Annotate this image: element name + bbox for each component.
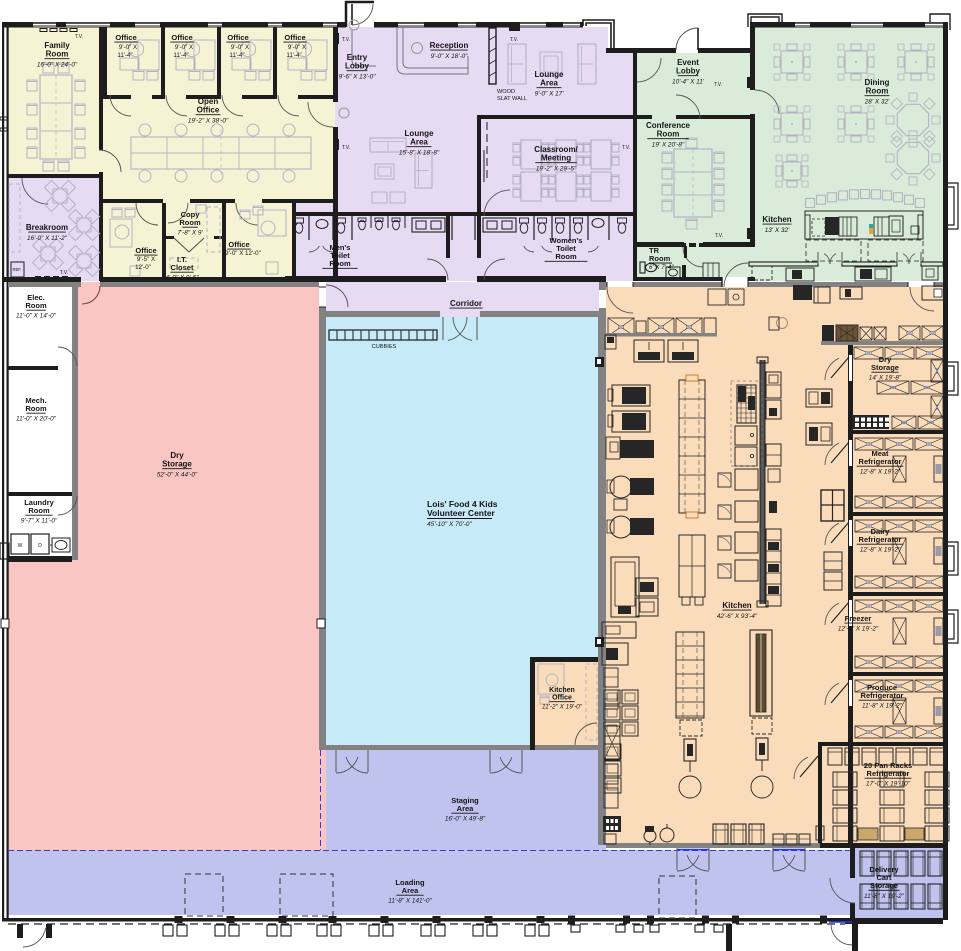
- svg-text:T.V.: T.V.: [622, 145, 630, 151]
- svg-text:T.V.: T.V.: [342, 145, 350, 151]
- svg-text:11'-8" X 19'-2": 11'-8" X 19'-2": [862, 703, 903, 710]
- svg-text:9'-0" X 17': 9'-0" X 17': [535, 91, 565, 98]
- svg-text:11'-4": 11'-4": [173, 52, 188, 59]
- svg-text:T.V.: T.V.: [714, 82, 722, 88]
- svg-text:Storage: Storage: [871, 363, 899, 372]
- svg-text:Refrigerator: Refrigerator: [859, 457, 902, 466]
- svg-text:Storage: Storage: [870, 881, 898, 890]
- svg-text:Lobby: Lobby: [345, 62, 370, 71]
- svg-text:Volunteer Center: Volunteer Center: [427, 508, 496, 518]
- svg-text:52'-0" X 44'-0": 52'-0" X 44'-0": [157, 472, 198, 479]
- svg-text:Closet: Closet: [171, 263, 194, 272]
- svg-text:9'-0" X: 9'-0" X: [288, 44, 306, 51]
- svg-text:19'-2" X 38'-0": 19'-2" X 38'-0": [188, 118, 229, 125]
- svg-text:12'-8" X 19'-2": 12'-8" X 19'-2": [860, 547, 901, 554]
- svg-text:SLAT WALL: SLAT WALL: [497, 96, 527, 102]
- svg-text:9'-6" X 13'-0": 9'-6" X 13'-0": [339, 74, 377, 81]
- svg-text:4'-0" X 9'-5": 4'-0" X 9'-5": [165, 275, 199, 282]
- svg-text:12'-8" X 19'-2": 12'-8" X 19'-2": [860, 469, 901, 476]
- svg-text:11'-4": 11'-4": [229, 52, 244, 59]
- svg-text:Office: Office: [197, 106, 220, 115]
- svg-text:Room: Room: [866, 87, 889, 96]
- svg-text:Kitchen: Kitchen: [722, 601, 751, 610]
- svg-text:T.V.: T.V.: [342, 37, 350, 43]
- svg-text:Kitchen: Kitchen: [762, 215, 791, 224]
- svg-text:11'-0" X 20'-0": 11'-0" X 20'-0": [16, 416, 57, 423]
- svg-text:REF.: REF.: [12, 267, 21, 272]
- svg-text:12'-0": 12'-0": [135, 264, 151, 271]
- svg-text:T.V.: T.V.: [60, 270, 68, 276]
- svg-text:D: D: [38, 543, 42, 549]
- svg-text:Room: Room: [25, 301, 47, 310]
- svg-text:Area: Area: [540, 79, 558, 88]
- svg-text:17'-0" X 19'-10": 17'-0" X 19'-10": [866, 781, 911, 788]
- svg-text:10'-4" X 11': 10'-4" X 11': [672, 79, 705, 86]
- svg-text:W: W: [18, 543, 23, 549]
- svg-text:Office: Office: [115, 33, 136, 42]
- svg-text:9'-0" X 12'-0": 9'-0" X 12'-0": [225, 250, 261, 257]
- svg-text:T.V.: T.V.: [715, 233, 723, 239]
- svg-text:Freezer: Freezer: [845, 614, 872, 623]
- svg-text:Room: Room: [555, 252, 577, 261]
- svg-text:Storage: Storage: [162, 460, 192, 469]
- svg-text:Area: Area: [402, 886, 420, 895]
- svg-text:Office: Office: [228, 240, 249, 249]
- svg-text:T.V.: T.V.: [510, 37, 518, 43]
- svg-text:Refrigerator: Refrigerator: [867, 769, 910, 778]
- svg-text:45'-10" X 70'-0": 45'-10" X 70'-0": [427, 521, 472, 528]
- svg-text:9'-7" X 11'-0": 9'-7" X 11'-0": [21, 518, 58, 525]
- svg-text:16'-0" X 49'-8": 16'-0" X 49'-8": [445, 816, 486, 823]
- svg-text:16'-0" X 24'-0": 16'-0" X 24'-0": [37, 62, 78, 69]
- svg-text:Refrigerator: Refrigerator: [861, 691, 904, 700]
- svg-text:Reception: Reception: [430, 41, 469, 50]
- svg-text:Meeting: Meeting: [541, 154, 571, 163]
- svg-text:11'-8" X 19'-2": 11'-8" X 19'-2": [864, 893, 905, 900]
- svg-text:16'-0" X 11'-2": 16'-0" X 11'-2": [27, 235, 68, 242]
- svg-text:11'-0" X 14'-0": 11'-0" X 14'-0": [16, 313, 57, 320]
- svg-text:Room: Room: [28, 506, 50, 515]
- svg-text:11'-8" X 141'-0": 11'-8" X 141'-0": [388, 898, 432, 905]
- svg-text:12'-8" X 19'-2": 12'-8" X 19'-2": [838, 626, 879, 633]
- svg-text:Office: Office: [135, 246, 156, 255]
- svg-text:Refrigerator: Refrigerator: [859, 535, 902, 544]
- svg-text:WOOD: WOOD: [497, 89, 515, 95]
- svg-text:7'-8" X 9': 7'-8" X 9': [177, 230, 203, 237]
- svg-text:Room: Room: [329, 259, 351, 268]
- svg-text:9'-0" X: 9'-0" X: [231, 44, 249, 51]
- svg-text:T.V.: T.V.: [75, 34, 83, 40]
- svg-text:13' X 32': 13' X 32': [765, 227, 790, 234]
- svg-text:11'-4": 11'-4": [286, 52, 301, 59]
- svg-text:Corridor: Corridor: [450, 299, 482, 308]
- svg-text:Breakroom: Breakroom: [26, 223, 68, 232]
- svg-text:14' X 19'-8": 14' X 19'-8": [869, 375, 902, 382]
- svg-text:Room: Room: [46, 50, 69, 59]
- svg-text:Kitchen: Kitchen: [549, 687, 575, 694]
- svg-text:6' X 7'-4": 6' X 7'-4": [649, 264, 674, 271]
- svg-text:Area: Area: [410, 138, 428, 147]
- svg-text:Room: Room: [25, 404, 47, 413]
- svg-text:11'-4": 11'-4": [117, 52, 132, 59]
- svg-text:9'-0" X: 9'-0" X: [119, 44, 137, 51]
- svg-text:Office: Office: [171, 33, 192, 42]
- svg-text:28' X 32': 28' X 32': [864, 99, 890, 106]
- svg-text:Office: Office: [227, 33, 248, 42]
- svg-text:19' X 20'-8": 19' X 20'-8": [652, 142, 685, 149]
- svg-text:Area: Area: [457, 804, 475, 813]
- svg-text:9'-5" X: 9'-5" X: [137, 256, 155, 263]
- svg-text:CUBBIES: CUBBIES: [372, 344, 397, 350]
- svg-text:19'-2" X 29'-5": 19'-2" X 29'-5": [536, 166, 577, 173]
- svg-text:Office: Office: [284, 33, 305, 42]
- svg-text:42'-6" X 93'-4": 42'-6" X 93'-4": [717, 613, 758, 620]
- svg-text:9'-0" X 18'-0": 9'-0" X 18'-0": [431, 53, 469, 60]
- svg-text:11'-2" X 19'-0": 11'-2" X 19'-0": [542, 704, 583, 711]
- svg-text:Room: Room: [657, 130, 680, 139]
- svg-text:9'-0" X: 9'-0" X: [175, 44, 193, 51]
- svg-text:Room: Room: [649, 254, 671, 263]
- svg-text:Lobby: Lobby: [676, 67, 701, 76]
- svg-text:Office: Office: [552, 695, 572, 702]
- svg-text:Room: Room: [179, 218, 201, 227]
- svg-text:15'-8" X 18'-8": 15'-8" X 18'-8": [399, 150, 440, 157]
